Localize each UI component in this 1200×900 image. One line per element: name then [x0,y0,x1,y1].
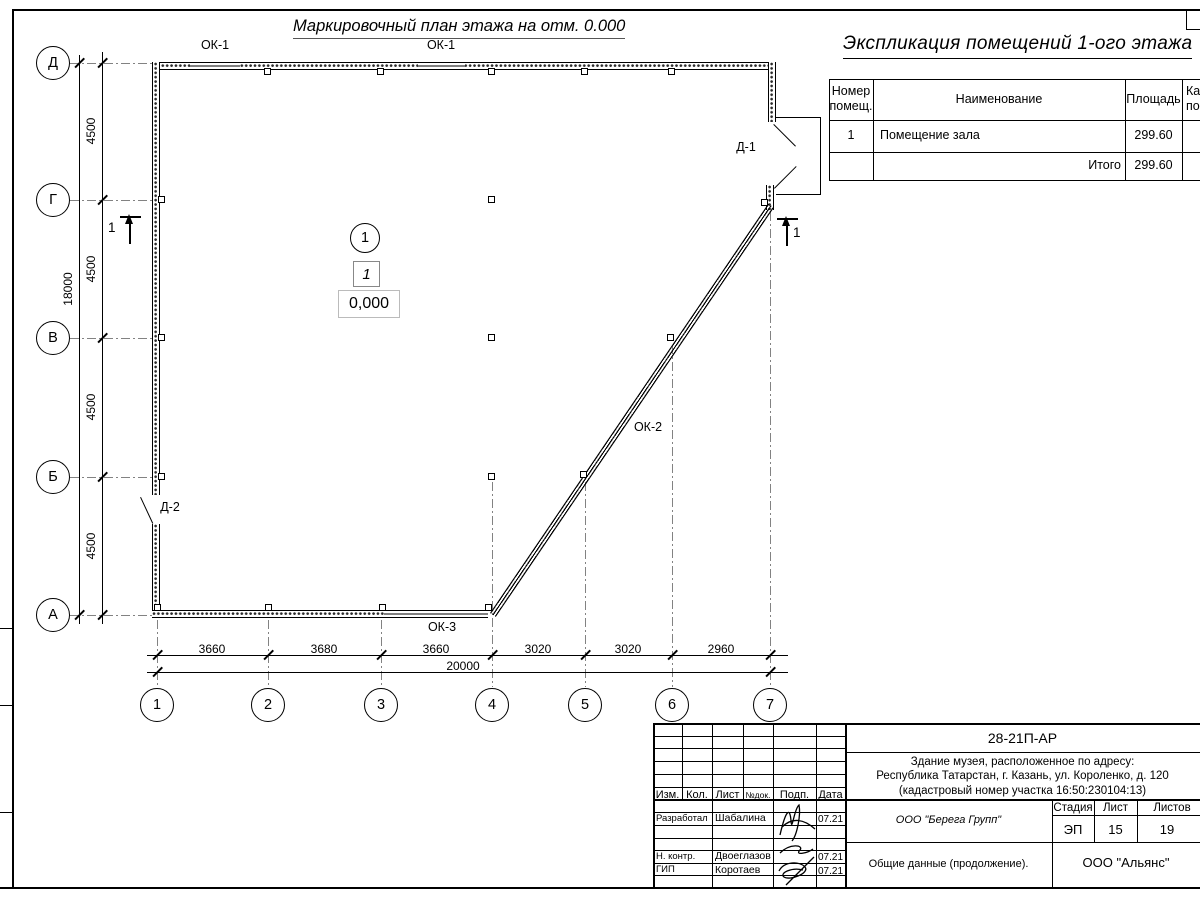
expl-header-cat: по [1186,100,1200,114]
grid-line-col-4 [492,482,493,687]
column-marker [488,473,495,480]
stamp-stage-label: Стадия [1052,802,1094,815]
window-label-ok1-b: ОК-1 [413,39,469,53]
window-label-ok3: ОК-3 [416,621,468,635]
expl-header-name: Наименование [873,93,1125,107]
dim-label: 2960 [691,642,751,656]
stamp-line [845,842,1200,843]
column-marker [580,471,587,478]
stamp-sheet-label: Лист [1094,802,1137,815]
table-line [829,120,1200,121]
column-marker [264,68,271,75]
wall-right-upper [768,62,776,122]
plan-title: Маркировочный план этажа на отм. 0.000 [293,17,625,39]
window-label-ok2: ОК-2 [620,421,676,435]
dim-label-total: 20000 [433,659,493,673]
stamp-col-podp: Подп. [773,789,816,801]
column-marker [377,68,384,75]
grid-line-col-7 [770,212,771,687]
grid-line-row-d [70,63,154,64]
expl-row-name: Помещение зала [880,129,980,143]
dim-label: 4500 [84,249,98,289]
stamp-line [845,752,1200,753]
axis-bubble-row: В [36,321,70,355]
axis-label: Г [49,192,57,208]
frame-top-line [12,9,1200,11]
stamp-address-line: Республика Татарстан, г. Казань, ул. Кор… [845,770,1200,783]
section-mark-label: 1 [793,226,801,241]
column-marker [265,604,272,611]
axis-label: 2 [264,697,272,713]
axis-bubble-row: Б [36,460,70,494]
stamp-org2: ООО "Альянс" [1052,856,1200,870]
frame-margin-tick [0,705,12,706]
drawing-sheet: Маркировочный план этажа на отм. 0.000 Э… [0,0,1200,900]
table-line [1182,79,1183,180]
dim-label: 4500 [84,387,98,427]
dim-label: 3660 [406,642,466,656]
expl-header-number: помещ. [829,100,873,114]
grid-line-row-b [70,477,154,478]
porch-outline [776,117,820,118]
axis-label: 4 [488,697,496,713]
dim-label-total: 18000 [61,266,75,312]
porch-outline [820,117,821,195]
stamp-line [682,723,683,799]
stamp-date: 07.21 [816,852,845,863]
door-d1-leaf [774,166,797,189]
expl-total-area: 299.60 [1125,159,1182,173]
grid-line-row-g [70,200,154,201]
axis-label: 7 [766,697,774,713]
stamp-role: ГИП [656,865,675,875]
axis-bubble-row: Г [36,183,70,217]
column-marker [158,334,165,341]
axis-bubble-row: Д [36,46,70,80]
room-elevation: 0,000 [349,295,389,313]
dim-label: 4500 [84,111,98,151]
stamp-stage-value: ЭП [1052,823,1094,837]
stamp-line [743,723,744,799]
door-d1-leaf [773,124,796,147]
signature-scribble [774,801,816,843]
column-marker [761,199,768,206]
wall-left-upper [152,62,160,495]
section-mark-bar [777,218,798,220]
section-mark-label: 1 [108,221,116,236]
stamp-role: Разработал [656,814,708,824]
grid-line-col-6 [672,345,673,687]
stamp-col-ndok: №док. [743,791,773,800]
column-marker [488,334,495,341]
window-ok3 [384,610,488,618]
column-marker [488,196,495,203]
stamp-doc-title: Общие данные (продолжение). [845,858,1052,870]
axis-label: 3 [377,697,385,713]
room-elevation-box: 0,000 [338,290,400,318]
expl-header-number: Номер [829,85,873,99]
expl-total-label: Итого [873,159,1121,173]
stamp-name: Коротаев [715,865,760,877]
stamp-address-line: Здание музея, расположенное по адресу: [845,756,1200,769]
table-line [829,180,1200,181]
frame-corner-mark [1186,9,1187,29]
dim-label: 4500 [84,526,98,566]
stamp-address-line: (кадастровый номер участка 16:50:230104:… [845,785,1200,798]
wall-bottom [152,610,384,618]
section-mark-bar [120,216,141,218]
expl-row-area: 299.60 [1125,129,1182,143]
column-marker [158,196,165,203]
axis-label: 1 [153,697,161,713]
stamp-sheets-value: 19 [1137,823,1197,837]
dim-label: 3660 [182,642,242,656]
window-ok1-b [418,62,465,70]
stamp-line [653,723,1200,725]
room-number-bubble: 1 [350,223,380,253]
porch-outline [776,194,820,195]
column-marker [667,334,674,341]
stamp-col-kol: Кол. [682,789,712,801]
dim-label: 3020 [598,642,658,656]
stamp-name: Шабалина [715,813,766,825]
axis-label: Д [48,55,58,71]
room-number: 1 [361,230,369,246]
stamp-col-list: Лист [712,789,743,801]
axis-bubble-col: 3 [364,688,398,722]
column-marker [485,604,492,611]
door-label-d2: Д-2 [152,501,188,515]
column-marker [488,68,495,75]
section-mark-line [786,223,788,246]
expl-row-number: 1 [829,129,873,143]
door-label-d1: Д-1 [728,141,764,155]
stamp-role: Н. контр. [656,852,695,862]
axis-bubble-col: 4 [475,688,509,722]
signature-scribble [776,841,816,887]
window-ok1-a [190,62,240,70]
explication-title: Экспликация помещений 1-ого этажа [843,33,1192,59]
frame-left-line [12,9,14,888]
room-tag-box: 1 [353,261,380,287]
axis-bubble-col: 1 [140,688,174,722]
dim-label: 3020 [508,642,568,656]
dim-line-left-outer [79,55,80,624]
stamp-sheet-value: 15 [1094,823,1137,837]
stamp-name: Двоеглазов [715,851,771,863]
frame-bottom-line [0,887,1200,889]
column-marker [158,473,165,480]
column-marker [379,604,386,611]
axis-label: Б [48,469,58,485]
grid-line-row-a [70,615,154,616]
stamp-line [653,723,655,887]
dim-label: 3680 [294,642,354,656]
section-mark-line [129,221,131,244]
stamp-date: 07.21 [816,866,845,877]
expl-header-cat: Ка [1186,85,1200,99]
window-label-ok1-a: ОК-1 [190,39,240,53]
axis-bubble-col: 7 [753,688,787,722]
axis-bubble-col: 5 [568,688,602,722]
stamp-doc-code: 28-21П-АР [845,731,1200,746]
grid-line-col-5 [585,482,586,687]
axis-label: 6 [668,697,676,713]
frame-margin-tick [0,628,12,629]
stamp-line [712,723,713,887]
frame-margin-tick [0,812,12,813]
stamp-sheets-label: Листов [1137,802,1200,815]
axis-bubble-col: 6 [655,688,689,722]
column-marker [668,68,675,75]
room-tag: 1 [362,266,370,283]
table-line [829,152,1200,153]
stamp-date: 07.21 [816,814,845,825]
expl-header-area: Площадь [1125,93,1182,107]
grid-line-row-v [70,338,154,339]
stamp-col-izm: Изм. [653,789,682,801]
glazed-wall-ok2 [490,204,774,617]
stamp-org1: ООО "Берега Групп" [845,814,1052,826]
axis-label: А [48,607,58,623]
axis-bubble-row: А [36,598,70,632]
column-marker [581,68,588,75]
table-line [829,79,1200,80]
axis-label: В [48,330,58,346]
frame-corner-mark [1186,29,1200,30]
axis-label: 5 [581,697,589,713]
stamp-col-data: Дата [816,789,845,801]
column-marker [154,604,161,611]
stamp-line [1052,815,1200,816]
axis-bubble-col: 2 [251,688,285,722]
